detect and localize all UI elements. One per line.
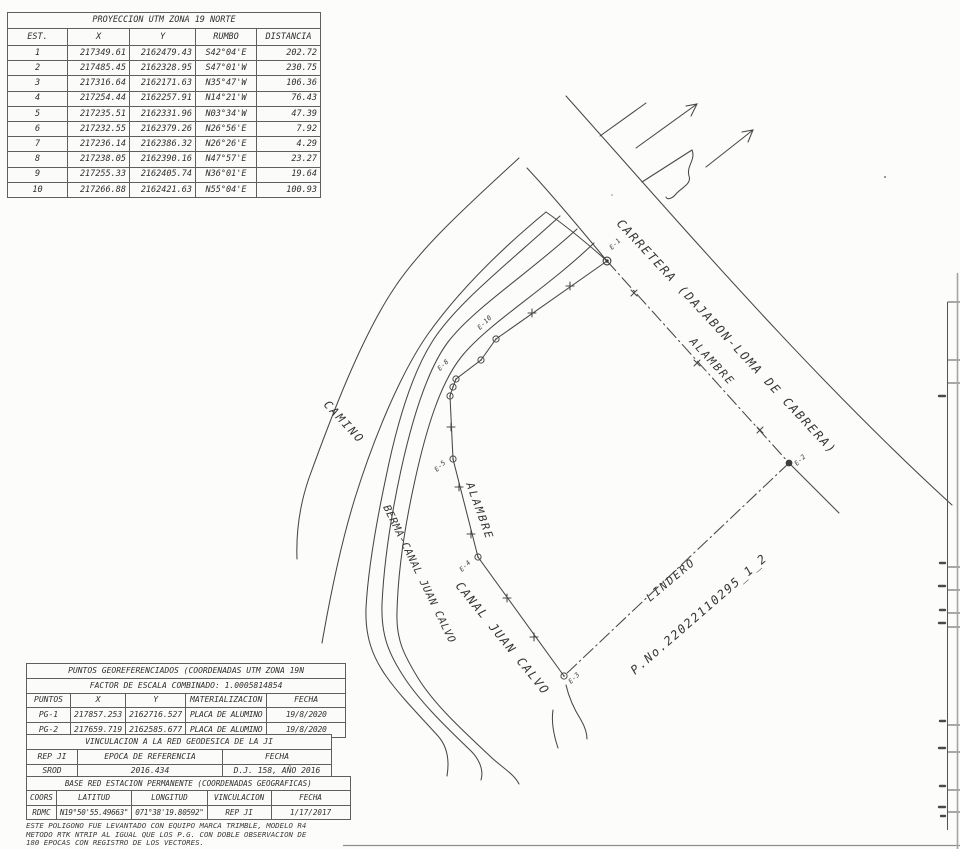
utm-column-header: X [68,29,130,46]
utm-cell: 2162405.74 [130,167,196,182]
station-label: E-5 [433,459,448,474]
drawing-label: P.No.22022110295_1_2 [628,551,770,677]
geo-column-header: X [71,693,126,708]
canal-east-bank [397,243,594,784]
geo-cell: 2162716.527 [126,708,186,723]
carretera-ne-edge [566,96,952,505]
utm-cell: 19.64 [257,167,321,182]
geo-points-table-body: PUNTOS GEOREFERENCIADOS (COORDENADAS UTM… [27,664,346,738]
station-label: E-8 [436,358,451,373]
utm-cell: 5 [8,106,68,121]
base-cell: 1/17/2017 [271,805,350,819]
utm-cell: 100.93 [257,182,321,197]
road-lines [297,96,952,643]
utm-cell: 3 [8,76,68,91]
utm-cell: 4 [8,91,68,106]
utm-cell: N55°04'E [196,182,257,197]
branch-road-edge-1 [600,103,646,136]
utm-table-body: PROYECCION UTM ZONA 19 NORTEEST.XYRUMBOD… [8,13,321,198]
utm-column-header: EST. [8,29,68,46]
table-row: PUNTOSXYMATERIALIZACIONFECHA [27,693,346,708]
utm-cell: N36°01'E [196,167,257,182]
station-marker [478,357,484,363]
station-marker [447,393,453,399]
station-label: E-1 [608,237,623,252]
utm-cell: 217485.45 [68,61,130,76]
fence-plus-tick [566,282,574,290]
geo-column-header: MATERIALIZACION [186,693,267,708]
utm-cell: 230.75 [257,61,321,76]
utm-cell: 2 [8,61,68,76]
utm-cell: 23.27 [257,152,321,167]
direction-arrow-1 [636,104,697,148]
utm-cell: 10 [8,182,68,197]
table-row: BASE RED ESTACION PERMANENTE (COORDENADA… [27,777,351,791]
geo-table-title: PUNTOS GEOREFERENCIADOS (COORDENADAS UTM… [27,664,346,679]
table-row: 3217316.642162171.63N35°47'W106.36 [8,76,321,91]
station-marker-center [495,338,497,340]
utm-column-header: DISTANCIA [257,29,321,46]
drawing-label: CAMINO [321,397,368,446]
base-cell: N19°50'55.49663" [56,805,131,819]
utm-cell: 217255.33 [68,167,130,182]
scan-speck [884,176,886,178]
geo-cell: 19/8/2020 [267,708,346,723]
utm-cell: N47°57'E [196,152,257,167]
table-row: 7217236.142162386.32N26°26'E4.29 [8,137,321,152]
table-row: 8217238.052162390.16N47°57'E23.27 [8,152,321,167]
station-marker-center [477,556,479,558]
base-cell: RDMC [27,805,57,819]
drawing-label: ALAMBRE [463,480,496,542]
utm-table-title: PROYECCION UTM ZONA 19 NORTE [8,13,321,29]
station-marker [561,673,567,679]
station-marker-center [605,259,608,262]
drawing-label: LINDERO [644,556,699,605]
geo-column-header: PUNTOS [27,693,71,708]
table-row: PUNTOS GEOREFERENCIADOS (COORDENADAS UTM… [27,664,346,679]
direction-arrow-2 [706,130,753,167]
utm-column-header: Y [130,29,196,46]
table-row: 4217254.442162257.91N14°21'W76.43 [8,91,321,106]
table-row: REP JIEPOCA DE REFERENCIAFECHA [27,749,332,764]
utm-projection-table: PROYECCION UTM ZONA 19 NORTEEST.XYRUMBOD… [7,12,321,198]
station-marker [453,376,459,382]
table-row: PG-1217857.2532162716.527PLACA DE ALUMIN… [27,708,346,723]
utm-cell: S42°04'E [196,46,257,61]
utm-cell: 2162257.91 [130,91,196,106]
utm-cell: 76.43 [257,91,321,106]
utm-cell: 2162331.96 [130,106,196,121]
station-label: E-3 [567,671,582,686]
drawing-label: ALAMBRE [686,334,737,388]
vinc-table-title: VINCULACION A LA RED GEODESICA DE LA JI [27,735,332,750]
geo-column-header: Y [126,693,186,708]
utm-cell: 7 [8,137,68,152]
station-marker [450,456,456,462]
fence-x-tick [757,427,763,433]
utm-cell: 217316.64 [68,76,130,91]
table-row: FACTOR DE ESCALA COMBINADO: 1.0005814854 [27,678,346,693]
utm-cell: 9 [8,167,68,182]
survey-method-notes: ESTE POLIGONO FUE LEVANTADO CON EQUIPO M… [26,822,306,848]
utm-cell: 2162421.63 [130,182,196,197]
base-station-table: BASE RED ESTACION PERMANENTE (COORDENADA… [26,776,351,820]
geodesic-link-table: VINCULACION A LA RED GEODESICA DE LA JIR… [26,734,332,779]
table-row: RDMCN19°50'55.49663"071°38'19.80592"REP … [27,805,351,819]
geo-points-table: PUNTOS GEOREFERENCIADOS (COORDENADAS UTM… [26,663,346,738]
geo-column-header: FECHA [267,693,346,708]
drawing-label: CANAL JUAN CALVO [453,579,553,698]
table-row: EST.XYRUMBODISTANCIA [8,29,321,46]
utm-cell: 2162479.43 [130,46,196,61]
base-cell: 071°38'19.80592" [132,805,207,819]
utm-cell: 2162386.32 [130,137,196,152]
table-row: VINCULACION A LA RED GEODESICA DE LA JI [27,735,332,750]
boundary-lines [450,261,789,676]
utm-cell: 217235.51 [68,106,130,121]
fence-west-polyline [450,261,607,676]
fence-alambre-ne [607,261,789,463]
margin-table-fragment [939,302,960,830]
utm-cell: N35°47'W [196,76,257,91]
base-cell: REP JI [207,805,271,819]
base-column-header: FECHA [271,791,350,805]
station-marker [786,460,793,467]
lindero-boundary [564,463,789,676]
vinc-column-header: EPOCA DE REFERENCIA [78,749,223,764]
utm-cell: 202.72 [257,46,321,61]
carretera-sw-edge-upper [527,168,607,261]
note-line: 180 EPOCAS CON REGISTRO DE LOS VECTORES. [26,839,306,848]
utm-cell: 217232.55 [68,121,130,136]
fence-x-tick [631,290,637,296]
fence-plus-tick [530,633,538,641]
table-row: 10217266.882162421.63N55°04'E100.93 [8,182,321,197]
utm-cell: 2162379.26 [130,121,196,136]
utm-cell: 217349.61 [68,46,130,61]
scale-factor-row: FACTOR DE ESCALA COMBINADO: 1.0005814854 [27,678,346,693]
table-row: COORSLATITUDLONGITUDVINCULACIONFECHA [27,791,351,805]
table-row: PROYECCION UTM ZONA 19 NORTE [8,13,321,29]
station-marker-center [455,378,457,380]
utm-cell: 2162328.95 [130,61,196,76]
geo-cell: PLACA DE ALUMINO [186,708,267,723]
table-row: 6217232.552162379.26N26°56'E7.92 [8,121,321,136]
geo-cell: PG-1 [27,708,71,723]
drawing-label: BERMA-CANAL JUAN CALVO [380,503,458,645]
station-marker-center [563,675,565,677]
station-marker [450,384,456,390]
utm-cell: 217236.14 [68,137,130,152]
base-station-table-body: BASE RED ESTACION PERMANENTE (COORDENADA… [27,777,351,820]
base-table-title: BASE RED ESTACION PERMANENTE (COORDENADA… [27,777,351,791]
carretera-sw-edge-lower [789,463,839,513]
table-row: 5217235.512162331.96N03°34'W47.39 [8,106,321,121]
scan-artifacts [343,176,960,849]
table-row: 9217255.332162405.74N36°01'E19.64 [8,167,321,182]
station-marker-center [480,359,482,361]
utm-cell: 217238.05 [68,152,130,167]
station-marker-center [449,395,451,397]
fence-x-tick [694,360,700,366]
station-label: E-4 [458,559,473,574]
branch-road-squiggle [666,150,693,199]
canal-tail-2 [566,685,587,739]
geodesic-link-table-body: VINCULACION A LA RED GEODESICA DE LA JIR… [27,735,332,779]
table-row: 1217349.612162479.43S42°04'E202.72 [8,46,321,61]
generated-stations-and-labels: E-1E-2E-3E-4E-5E-8E-10CARRETERA (DAJABON… [321,216,840,697]
utm-cell: 2162171.63 [130,76,196,91]
station-label: E-2 [793,453,808,468]
vinc-column-header: REP JI [27,749,78,764]
utm-cell: N26°26'E [196,137,257,152]
camino-nw-edge [297,158,519,559]
base-column-header: LONGITUD [132,791,207,805]
fence-plus-tick [455,483,463,491]
fence-plus-tick [447,423,455,431]
canal-middle-line [382,229,577,780]
camino-se-edge [322,212,546,643]
utm-cell: S47°01'W [196,61,257,76]
geo-cell: 217857.253 [71,708,126,723]
fence-plus-tick [467,530,475,538]
station-marker-center [452,386,454,388]
utm-cell: 7.92 [257,121,321,136]
utm-cell: N14°21'W [196,91,257,106]
camino-junction-sweep [546,212,607,261]
drawing-label: CARRETERA (DAJABON-LOMA DE CABRERA) [614,216,840,457]
utm-cell: 217254.44 [68,91,130,106]
scan-speck [611,194,613,196]
canal-tail-1 [552,710,558,748]
utm-cell: 106.36 [257,76,321,91]
utm-cell: 2162390.16 [130,152,196,167]
canal-lines [366,216,594,784]
station-label: E-10 [476,314,494,332]
base-column-header: LATITUD [56,791,131,805]
station-marker [493,336,499,342]
branch-road-edge-2 [642,150,692,182]
station-marker [475,554,481,560]
utm-cell: 6 [8,121,68,136]
station-marker [603,257,611,265]
table-row: 2217485.452162328.95S47°01'W230.75 [8,61,321,76]
base-column-header: VINCULACION [207,791,271,805]
canal-west-bank [366,216,560,776]
utm-column-header: RUMBO [196,29,257,46]
fragment-row-dividers [948,302,960,812]
station-marker-center [452,458,454,460]
utm-cell: 217266.88 [68,182,130,197]
utm-cell: N26°56'E [196,121,257,136]
utm-cell: N03°34'W [196,106,257,121]
scanned-survey-plan-page: PROYECCION UTM ZONA 19 NORTEEST.XYRUMBOD… [0,0,960,849]
utm-cell: 8 [8,152,68,167]
base-column-header: COORS [27,791,57,805]
utm-cell: 1 [8,46,68,61]
fragment-clipped-text-marks [939,396,945,816]
fence-plus-tick [503,594,511,602]
utm-cell: 4.29 [257,137,321,152]
fence-plus-tick [528,309,536,317]
utm-cell: 47.39 [257,106,321,121]
vinc-column-header: FECHA [223,749,332,764]
